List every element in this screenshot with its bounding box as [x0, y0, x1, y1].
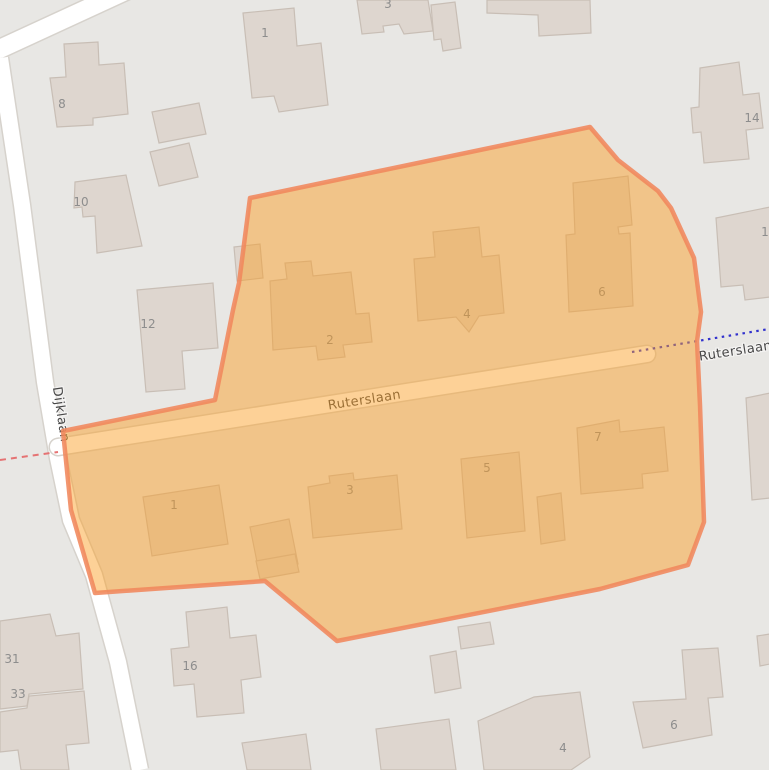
house-number-label: 1 [261, 26, 269, 40]
house-number-label: 8 [58, 97, 66, 111]
house-number-label: 3 [384, 0, 392, 11]
house-number-label: 4 [559, 741, 567, 755]
house-number-label: 6 [670, 718, 678, 732]
map-canvas[interactable]: Ruterslaan Ruterslaan Dijklaan 810121314… [0, 0, 769, 770]
house-number-label: 31 [4, 652, 19, 666]
building [458, 622, 494, 649]
house-number-label: 12 [140, 317, 155, 331]
map-viewport[interactable]: Ruterslaan Ruterslaan Dijklaan 810121314… [0, 0, 769, 770]
house-number-label: 1 [761, 225, 769, 239]
house-number-label: 16 [182, 659, 197, 673]
house-number-label: 10 [73, 195, 88, 209]
house-number-label: 14 [744, 111, 759, 125]
building [430, 651, 461, 693]
house-number-label: 33 [10, 687, 25, 701]
